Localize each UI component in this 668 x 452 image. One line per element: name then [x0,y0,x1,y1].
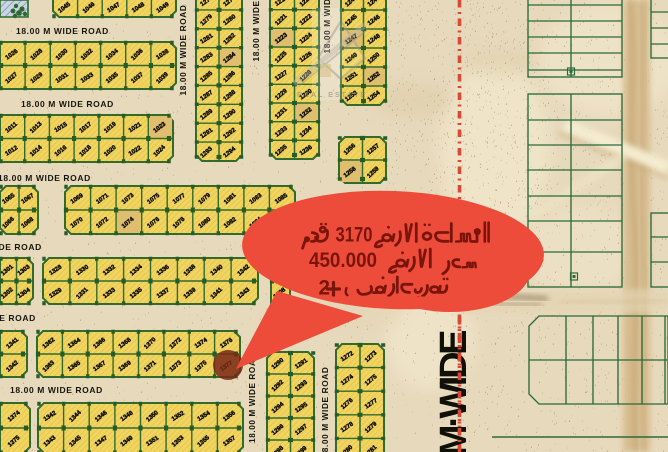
svg-text:REAL ESTATE: REAL ESTATE [297,90,367,99]
svg-text:18.00 M WIDE ROAD: 18.00 M WIDE ROAD [16,26,109,36]
svg-text:18.00 M WIDE ROAD: 18.00 M WIDE ROAD [248,353,257,443]
svg-text:18.00 M WIDE ROAD: 18.00 M WIDE ROAD [178,5,188,96]
svg-text:3170: 3170 [336,223,373,247]
svg-text:18.00 M WIDE ROAD: 18.00 M WIDE ROAD [21,99,114,109]
svg-text:18.00 M WIDE ROAD: 18.00 M WIDE ROAD [251,0,261,61]
svg-text:18.00 M WIDE ROAD: 18.00 M WIDE ROAD [0,313,36,323]
svg-text:18.00 M WIDE ROAD: 18.00 M WIDE ROAD [320,367,330,452]
svg-text:18.00 M WIDE ROAD: 18.00 M WIDE ROAD [10,385,103,395]
svg-text:18.00 M WIDE ROAD: 18.00 M WIDE ROAD [0,173,91,183]
svg-text:18.00 M WIDE ROAD: 18.00 M WIDE ROAD [0,242,42,252]
svg-text:450.000: 450.000 [309,248,377,272]
svg-text:M·WIDE: M·WIDE [433,331,475,452]
